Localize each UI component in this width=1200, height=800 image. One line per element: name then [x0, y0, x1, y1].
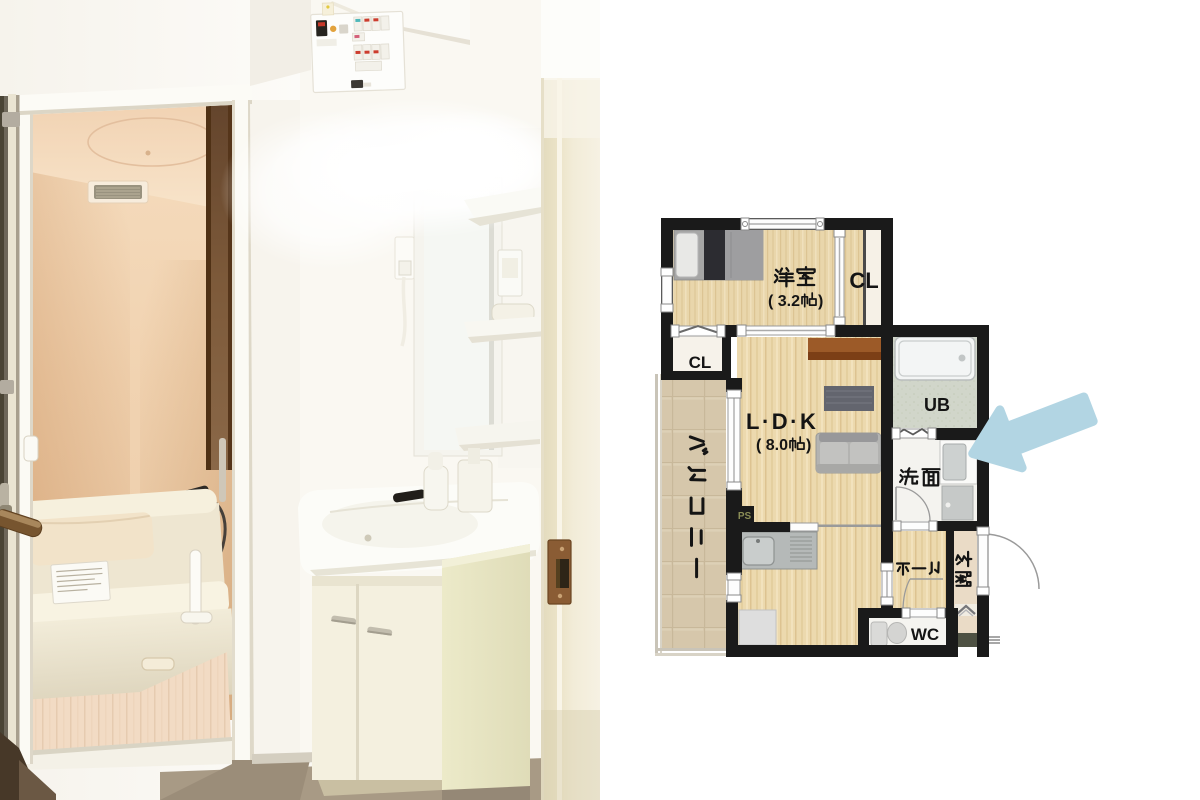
svg-text:( 8.0: ( 8.0 [756, 437, 788, 454]
svg-text:): ) [818, 293, 823, 310]
svg-text:CL: CL [849, 268, 878, 293]
svg-text:PS: PS [738, 511, 752, 522]
svg-text:WC: WC [911, 625, 939, 644]
svg-text:UB: UB [924, 395, 950, 415]
svg-text:L·D·K: L·D·K [746, 409, 818, 434]
svg-text:CL: CL [689, 353, 712, 372]
svg-text:( 3.2: ( 3.2 [768, 293, 800, 310]
svg-text:): ) [806, 437, 811, 454]
